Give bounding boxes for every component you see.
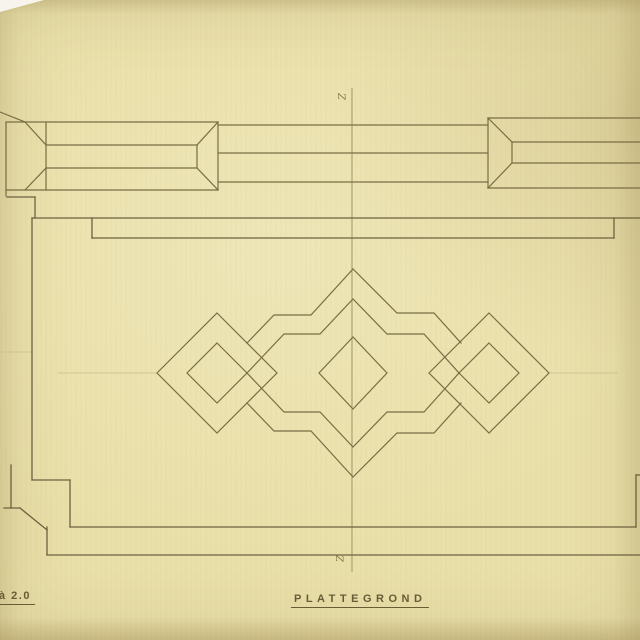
scanned-floor-plan-photo: PLATTEGROND à 2.0 Z Z — [0, 0, 640, 640]
axis-mark-top: Z — [335, 93, 346, 100]
top-wall-band — [0, 112, 640, 196]
scale-note: à 2.0 — [0, 590, 35, 605]
floor-plan-drawing — [0, 0, 640, 640]
diamond-ornament — [157, 269, 549, 477]
pencil-guidelines — [0, 352, 618, 373]
drawing-title: PLATTEGROND — [291, 593, 429, 608]
axis-mark-bottom: Z — [333, 555, 344, 562]
